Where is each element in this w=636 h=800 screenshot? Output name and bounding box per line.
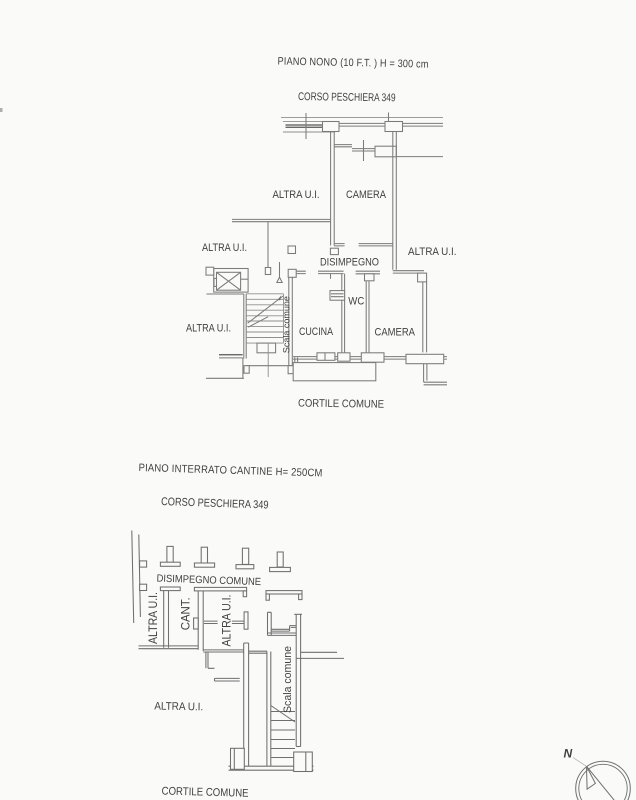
svg-text:CAMERA: CAMERA	[346, 189, 387, 201]
svg-text:ALTRA U.I.: ALTRA U.I.	[273, 189, 320, 201]
svg-text:CANT.: CANT.	[178, 597, 192, 630]
svg-text:ALTRA U.I.: ALTRA U.I.	[220, 595, 234, 647]
svg-text:CAMERA: CAMERA	[375, 327, 416, 339]
svg-text:CORTILE COMUNE: CORTILE COMUNE	[298, 398, 384, 411]
svg-text:Scala comune: Scala comune	[281, 296, 291, 353]
svg-text:ALTRA U.I.: ALTRA U.I.	[408, 246, 457, 258]
svg-text:CORTILE COMUNE: CORTILE COMUNE	[161, 786, 248, 800]
svg-text:CUCINA: CUCINA	[299, 326, 334, 338]
svg-text:DISIMPEGNO: DISIMPEGNO	[320, 257, 379, 269]
svg-text:ALTRA U.I.: ALTRA U.I.	[202, 242, 247, 254]
svg-text:Scala comune: Scala comune	[282, 646, 294, 713]
svg-text:WC: WC	[348, 296, 364, 308]
svg-text:ALTRA U.I.: ALTRA U.I.	[154, 701, 203, 714]
svg-text:ALTRA U.I.: ALTRA U.I.	[146, 592, 160, 644]
svg-text:CORSO PESCHIERA 349: CORSO PESCHIERA 349	[298, 91, 396, 104]
svg-text:N: N	[564, 747, 573, 761]
svg-text:ALTRA U.I.: ALTRA U.I.	[186, 323, 231, 335]
